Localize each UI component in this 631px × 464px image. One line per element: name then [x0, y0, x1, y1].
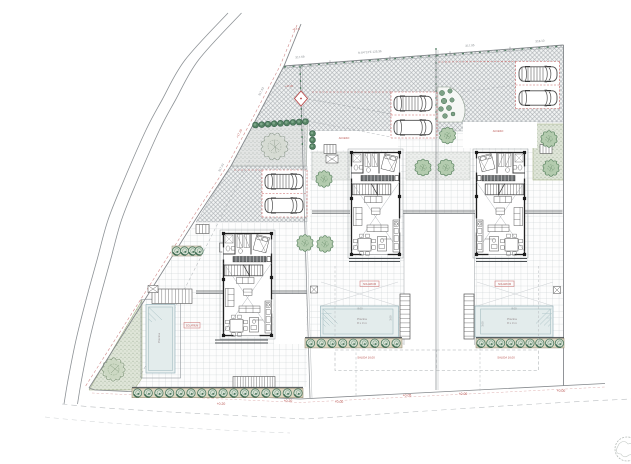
svg-text:317.69: 317.69 — [295, 55, 305, 60]
svg-text:SALIDA 16,00: SALIDA 16,00 — [497, 356, 515, 360]
svg-text:317.95: 317.95 — [465, 43, 475, 48]
svg-text:318.10: 318.10 — [535, 39, 545, 44]
svg-text:3.00: 3.00 — [389, 315, 393, 321]
svg-text:8.00: 8.00 — [357, 307, 363, 311]
svg-text:+17.20: +17.20 — [285, 84, 294, 88]
svg-text:ACCESO: ACCESO — [339, 137, 350, 140]
svg-text:SOLARIUM: SOLARIUM — [363, 283, 376, 286]
svg-text:+0.05: +0.05 — [403, 394, 412, 398]
svg-text:+0.00: +0.00 — [557, 389, 566, 393]
svg-text:+0.20: +0.20 — [284, 399, 293, 403]
svg-text:8.00: 8.00 — [511, 307, 517, 311]
svg-text:8 x 3 m: 8 x 3 m — [507, 321, 517, 325]
svg-text:SOLARIUM: SOLARIUM — [186, 325, 199, 328]
svg-text:SALIDA 16,00: SALIDA 16,00 — [357, 356, 375, 360]
svg-text:317.53: 317.53 — [257, 86, 265, 96]
svg-text:+0.00: +0.00 — [335, 400, 344, 404]
svg-text:+17.20: +17.20 — [235, 128, 243, 138]
svg-text:+17.5: +17.5 — [292, 27, 300, 31]
svg-text:ACCESO: ACCESO — [493, 130, 504, 133]
svg-text:8 x 3 m: 8 x 3 m — [357, 321, 367, 325]
svg-text:+0.00: +0.00 — [459, 392, 468, 396]
svg-text:Piscina: Piscina — [157, 333, 161, 343]
svg-text:3.00: 3.00 — [481, 321, 485, 327]
svg-text:SOLARIUM: SOLARIUM — [498, 283, 511, 286]
svg-text:N 84°12'E 125.36: N 84°12'E 125.36 — [358, 49, 382, 55]
svg-text:+0.20: +0.20 — [217, 402, 226, 406]
